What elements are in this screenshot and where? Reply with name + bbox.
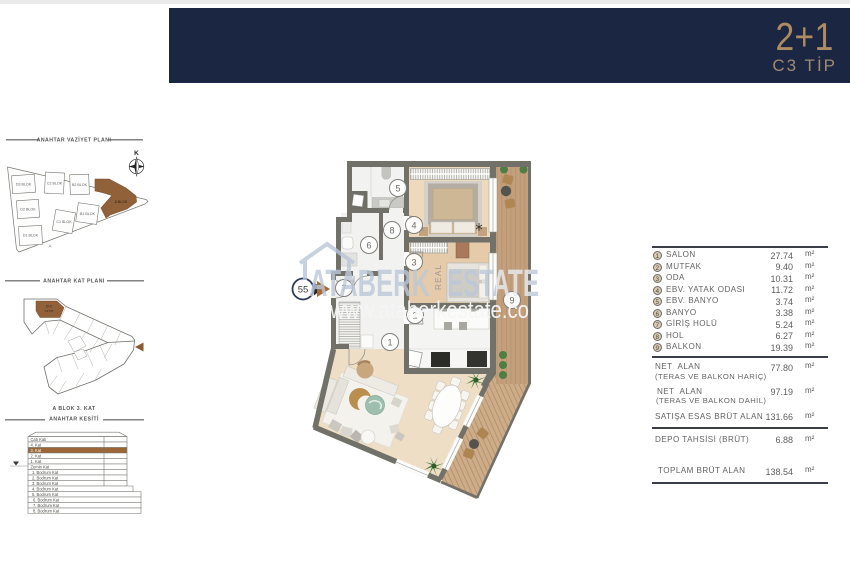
- svg-text:B2 BLOK: B2 BLOK: [72, 183, 88, 187]
- svg-text:ANAHTAR VAZİYET PLANI: ANAHTAR VAZİYET PLANI: [37, 137, 112, 144]
- svg-text:7. Bodrum Kat: 7. Bodrum Kat: [33, 503, 60, 508]
- svg-text:REAL: REAL: [433, 264, 443, 290]
- svg-text:A BLOK: A BLOK: [115, 200, 128, 204]
- svg-text:C1 BLOK: C1 BLOK: [56, 220, 72, 224]
- svg-text:2+1: 2+1: [46, 305, 52, 309]
- svg-text:C2 BLOK: C2 BLOK: [47, 182, 63, 186]
- svg-text:D2 BLOK: D2 BLOK: [20, 208, 36, 212]
- svg-text:2. Bodrum Kat: 2. Bodrum Kat: [32, 475, 59, 480]
- svg-text:4. Bodrum Kat: 4. Bodrum Kat: [32, 486, 59, 491]
- svg-text:2. Kat: 2. Kat: [31, 453, 43, 458]
- svg-text:5. Bodrum Kat: 5. Bodrum Kat: [32, 492, 59, 497]
- svg-text:1. Bodrum Kat: 1. Bodrum Kat: [32, 470, 59, 475]
- svg-text:Zemin Kat: Zemin Kat: [31, 464, 51, 469]
- svg-text:Çatı Katı: Çatı Katı: [31, 437, 47, 442]
- svg-text:ANAHTAR KESİTİ: ANAHTAR KESİTİ: [49, 416, 99, 423]
- svg-text:C3 TİP: C3 TİP: [45, 308, 54, 313]
- svg-text:ANAHTAR KAT PLANI: ANAHTAR KAT PLANI: [43, 279, 105, 285]
- svg-text:3. Kat: 3. Kat: [31, 448, 43, 453]
- svg-text:3. Bodrum Kat: 3. Bodrum Kat: [32, 481, 59, 486]
- svg-text:5: 5: [395, 184, 400, 194]
- svg-text:B1 BLOK: B1 BLOK: [80, 212, 96, 216]
- svg-text:1: 1: [387, 338, 392, 348]
- svg-text:4. Kat: 4. Kat: [31, 442, 43, 447]
- svg-text:K: K: [134, 150, 139, 157]
- svg-text:6: 6: [366, 241, 371, 251]
- svg-text:55: 55: [298, 285, 309, 296]
- svg-text:D1 BLOK: D1 BLOK: [23, 234, 39, 238]
- svg-text:A: A: [49, 244, 52, 249]
- svg-text:1. Kat: 1. Kat: [31, 459, 43, 464]
- svg-text:8. Bodrum Kat: 8. Bodrum Kat: [33, 508, 60, 513]
- svg-text:D3 BLOK: D3 BLOK: [16, 183, 32, 187]
- svg-text:6. Bodrum Kat: 6. Bodrum Kat: [33, 497, 60, 502]
- svg-text:www.ataberkestate.co: www.ataberkestate.co: [329, 297, 529, 324]
- svg-text:A BLOK 3. KAT: A BLOK 3. KAT: [52, 406, 95, 412]
- svg-text:8: 8: [389, 226, 394, 236]
- svg-text:4: 4: [411, 221, 416, 231]
